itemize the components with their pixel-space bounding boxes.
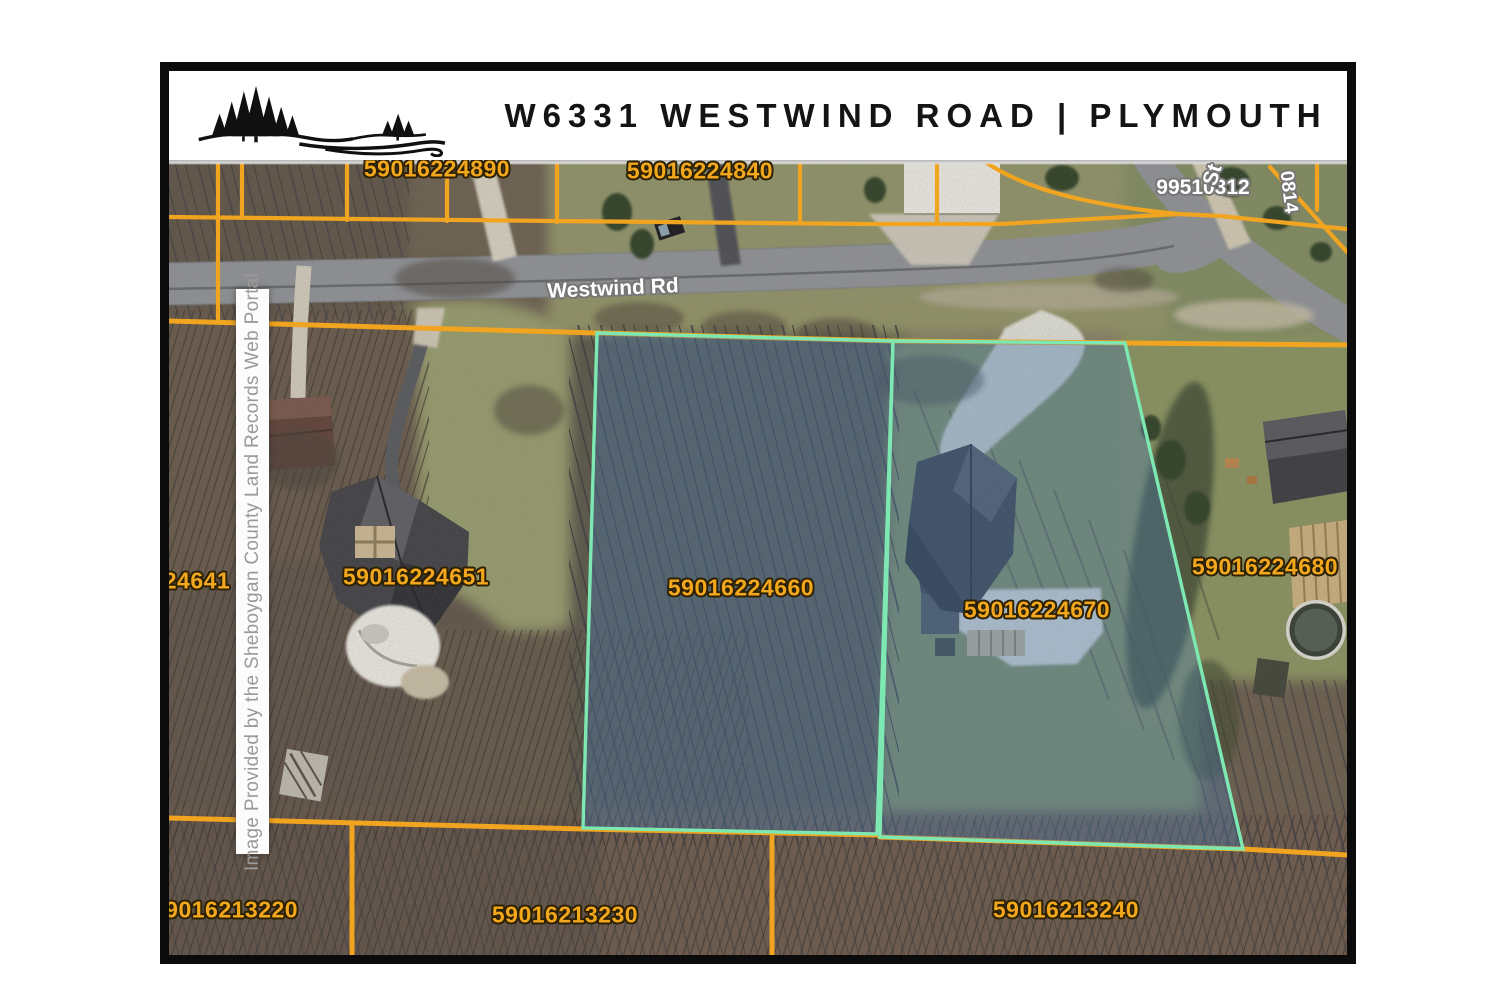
parcel-label-top-center: 59016224840 [627, 160, 773, 185]
parcel-label-south-center: 59016213230 [492, 902, 638, 929]
pine-trees-logo-art [184, 79, 484, 157]
credit-strip: Image Provided by the Sheboygan County L… [236, 289, 269, 854]
flyer-frame: W6331 WESTWIND ROAD | PLYMOUTH [160, 62, 1356, 964]
parcel-label-west-edge: 24641 [169, 568, 230, 595]
parcel-label-south-east: 59016213240 [993, 897, 1139, 924]
parcel-label-top-left: 59016224890 [364, 160, 510, 183]
parcel-label-west-neighbor: 59016224651 [343, 564, 489, 591]
credit-text: Image Provided by the Sheboygan County L… [242, 272, 264, 870]
aerial-parcel-map: Image Provided by the Sheboygan County L… [169, 160, 1347, 955]
parcel-label-south-west: 59016213220 [169, 897, 298, 924]
parcel-label-subject-west: 59016224660 [668, 575, 814, 602]
header: W6331 WESTWIND ROAD | PLYMOUTH [169, 71, 1347, 160]
parcel-label-subject-east: 59016224670 [964, 597, 1110, 624]
page-title: W6331 WESTWIND ROAD | PLYMOUTH [499, 97, 1347, 135]
aerial-photo-art [169, 160, 1347, 955]
pine-trees-logo [169, 75, 499, 157]
parcel-label-east-neighbor: 59016224680 [1192, 554, 1338, 581]
